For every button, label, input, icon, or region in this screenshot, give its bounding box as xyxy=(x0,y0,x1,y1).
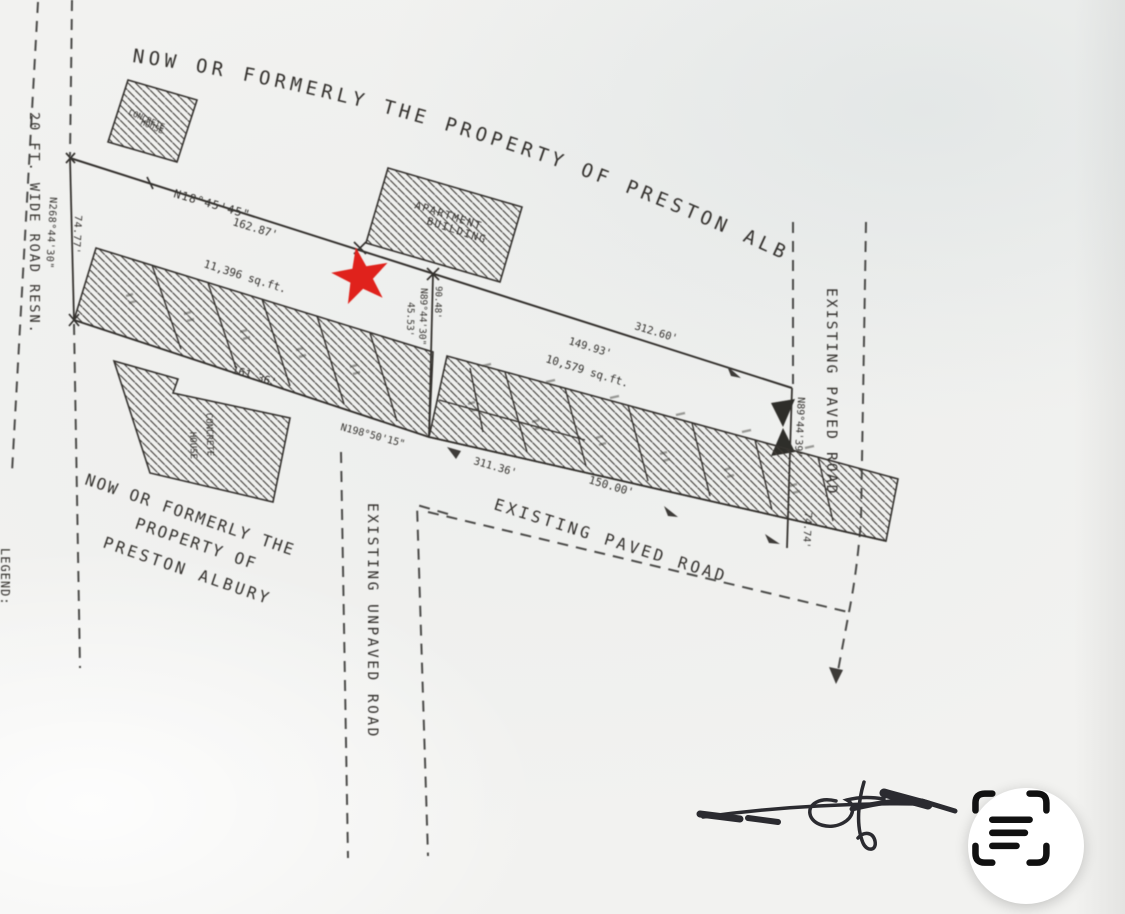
concrete-house-south-label: CONCRETE xyxy=(203,413,215,457)
apartment-building: APARTMENT BUILDING xyxy=(366,168,522,282)
scan-bracket-top-left xyxy=(975,794,992,811)
south-road-dashed-line xyxy=(428,512,848,612)
road-label-unpaved: EXISTING UNPAVED ROAD xyxy=(364,503,380,739)
south-parcel-area-label: 10,579 sq.ft. xyxy=(544,352,630,390)
east-road-east-dashed-line xyxy=(837,222,866,676)
west-distance-label: 74.77' xyxy=(70,215,83,255)
signature-scribble xyxy=(700,782,955,849)
dashed-line-arrowhead xyxy=(829,667,843,684)
concrete-house-north: CONCRETE HOUSE xyxy=(108,80,197,162)
center-distance-upper-label: 90.48' xyxy=(432,286,443,319)
arrowhead-south-line-right xyxy=(765,534,780,544)
scan-bracket-bottom-right xyxy=(1030,846,1047,863)
plat-drawing: CONCRETE HOUSE APARTMENT BUILDING CONCRE… xyxy=(0,0,1125,914)
live-text-scan-icon xyxy=(968,788,1052,872)
arrowhead-south-line-left xyxy=(447,447,461,459)
center-distance-lower-label: 45.53' xyxy=(404,302,416,337)
northeast-distance-total-label: 312.60' xyxy=(633,320,679,344)
live-text-scan-button[interactable] xyxy=(968,788,1084,904)
scanned-survey-plat: CONCRETE HOUSE APARTMENT BUILDING CONCRE… xyxy=(0,0,1125,914)
northeast-distance-part-label: 149.93' xyxy=(567,335,613,359)
west-inner-road-dashed-line-lower xyxy=(74,324,80,668)
east-bearing-label: N89°44'39" xyxy=(792,397,806,458)
south-distance-total-label: 311.36' xyxy=(472,455,518,479)
arrowhead-south-line-mid xyxy=(664,506,678,517)
road-label-south-paved: EXISTING PAVED ROAD xyxy=(492,495,730,586)
concrete-house-south-label-2: HOUSE xyxy=(187,432,198,459)
scan-bracket-top-right xyxy=(1030,794,1047,811)
road-label-east-paved: EXISTING PAVED ROAD xyxy=(823,288,839,496)
road-label-west-reservation: 20 FT. WIDE ROAD RESN. xyxy=(26,112,42,335)
scan-bracket-bottom-left xyxy=(975,846,992,863)
west-bearing-label: N268°44'30" xyxy=(43,197,58,269)
west-inner-road-dashed-line-upper xyxy=(70,0,72,156)
east-distance-label: 74.74' xyxy=(800,512,813,549)
north-distance-label: 162.87' xyxy=(231,215,279,241)
legend-label: LEGEND: xyxy=(0,548,12,606)
center-bearing-label: N89°44'30" xyxy=(416,288,429,346)
unpaved-road-west-dashed-line xyxy=(341,452,348,858)
unpaved-road-east-dashed-line xyxy=(417,505,448,856)
